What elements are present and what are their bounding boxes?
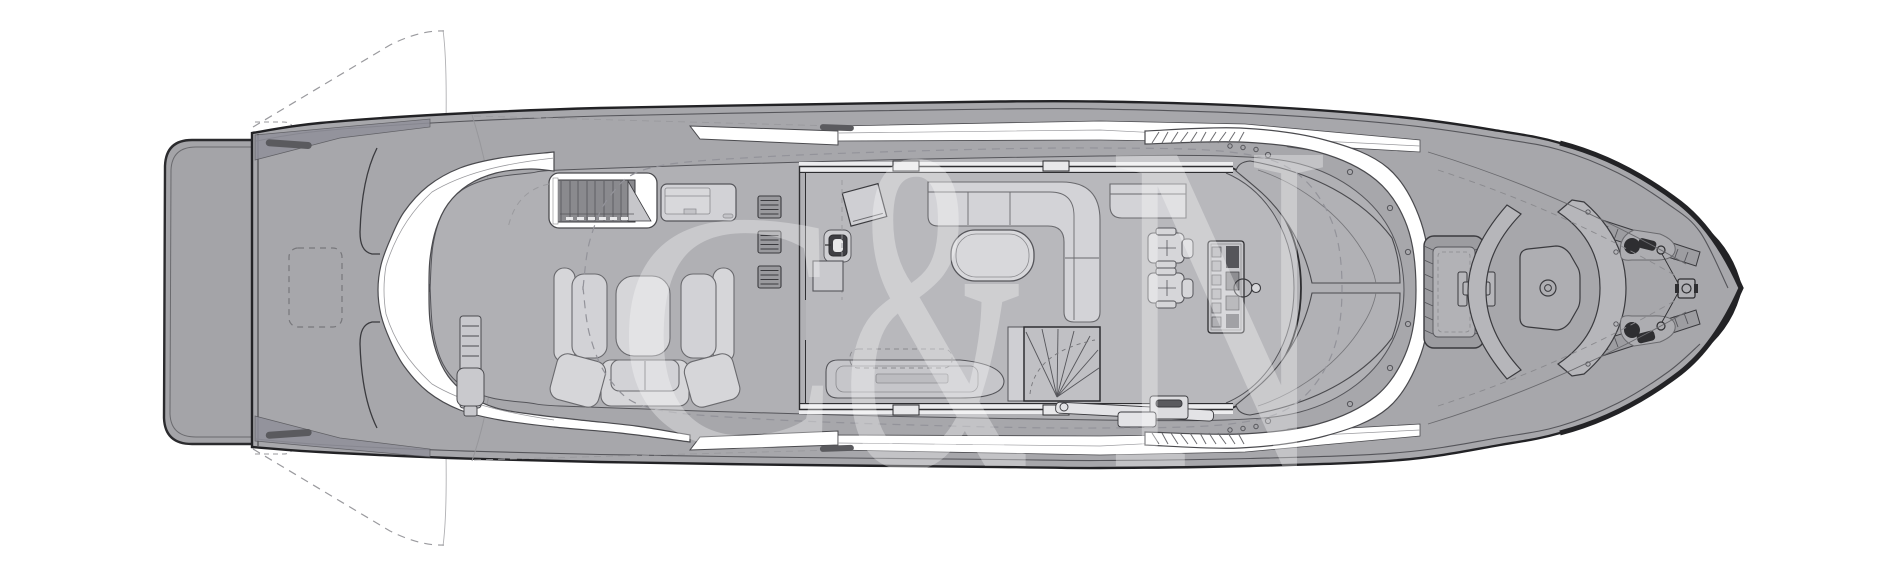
- svg-text:N: N: [1107, 43, 1330, 569]
- svg-text:&: &: [842, 54, 1030, 566]
- svg-text:C: C: [615, 142, 842, 519]
